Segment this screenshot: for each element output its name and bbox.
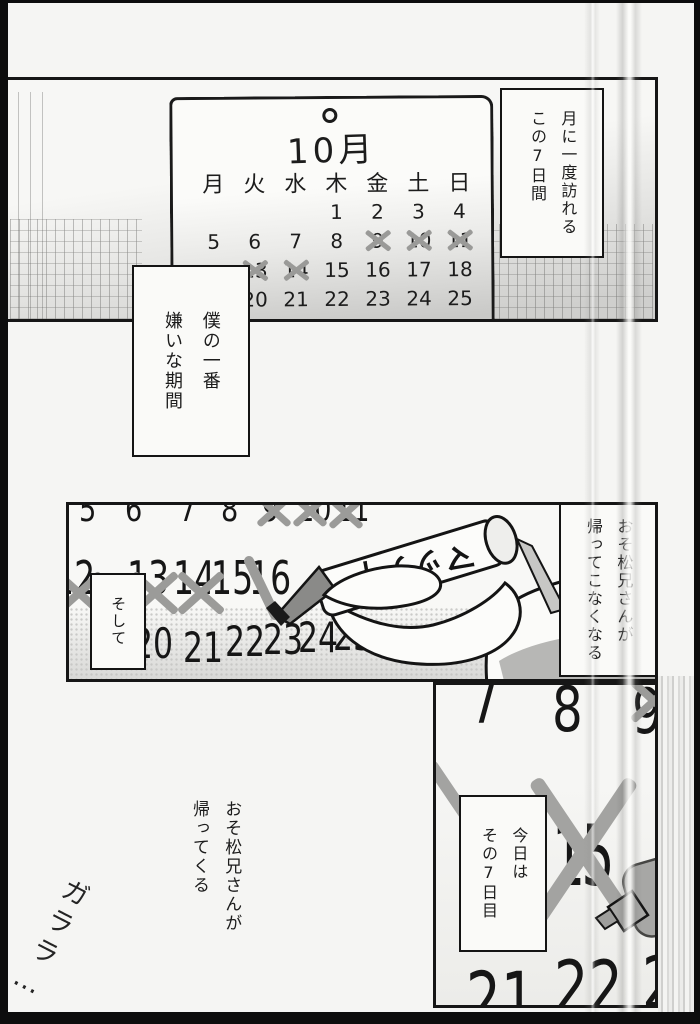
calendar-cell	[193, 198, 234, 227]
calendar-cell: 15	[316, 255, 357, 284]
caption-line: そして	[104, 596, 133, 647]
calendar-cell: 17	[398, 254, 439, 283]
calendar-weekday: 日	[439, 166, 480, 196]
narration-text: おそ松兄さんが 帰ってくる	[183, 800, 248, 933]
manga-page: 10月 月火水木金土日12345678910111314151617182021…	[0, 0, 700, 1024]
calendar-cell: 21	[276, 284, 317, 313]
caption-line: その7日目	[473, 827, 503, 920]
caption-text: 僕の一番 嫌いな期間	[153, 311, 229, 411]
calendar-weekday: 土	[398, 166, 439, 196]
narration-line: おそ松兄さんが	[215, 800, 247, 933]
calendar-cell: 3	[398, 196, 439, 225]
calendar-weekday: 火	[234, 167, 275, 197]
scan-border-bottom	[0, 1012, 700, 1024]
calendar-cell: 23	[358, 284, 399, 313]
caption-box-not-return: おそ松兄さんが 帰ってこなくなる	[559, 503, 657, 677]
caption-text: おそ松兄さんが 帰ってこなくなる	[578, 518, 639, 662]
caption-box-hate: 僕の一番 嫌いな期間	[132, 265, 250, 457]
calendar-cell: 4	[439, 196, 480, 225]
caption-line: 月に一度訪れる	[552, 110, 582, 236]
book-page-edges	[658, 676, 694, 1012]
caption-line: 嫌いな期間	[153, 311, 191, 411]
calendar-cell: 16	[357, 255, 398, 284]
sfx-door-slide: ガララ…	[0, 870, 96, 1009]
calendar-weekday: 水	[275, 167, 316, 197]
caption-text: そして	[104, 596, 133, 647]
calendar-cell: 24	[399, 283, 440, 312]
narration-line: 帰ってくる	[183, 800, 215, 933]
calendar-cell: 11	[439, 225, 480, 254]
floating-narration: おそ松兄さんが 帰ってくる	[172, 782, 258, 950]
calendar-cell: 7	[275, 226, 316, 255]
calendar-cell: 8	[316, 226, 357, 255]
calendar-cell: 9	[357, 226, 398, 255]
caption-box-seventh-day: 今日は その7日目	[459, 795, 547, 952]
scan-border-left	[0, 0, 8, 1024]
caption-line: 帰ってこなくなる	[578, 518, 608, 662]
caption-text: 今日は その7日目	[473, 827, 534, 920]
calendar-cell	[275, 197, 316, 226]
calendar-cell: 5	[193, 227, 234, 256]
calendar-cell: 25	[440, 283, 481, 312]
scan-border-top	[0, 0, 700, 3]
calendar-cell: 10	[398, 225, 439, 254]
calendar-cell: 2	[357, 197, 398, 226]
caption-text: 月に一度訪れる この7日間	[522, 110, 583, 236]
caption-line: この7日間	[522, 110, 552, 236]
calendar-weekday: 木	[316, 167, 357, 197]
scan-border-right	[694, 0, 700, 1024]
caption-box-soshite: そして	[90, 573, 146, 670]
caption-box-monthly: 月に一度訪れる この7日間	[500, 88, 604, 258]
calendar-cell: 18	[439, 254, 480, 283]
calendar-cell: 1	[316, 197, 357, 226]
caption-line: おそ松兄さんが	[608, 518, 638, 662]
calendar-weekday: 金	[357, 167, 398, 197]
calendar-weekday: 月	[193, 168, 234, 198]
calendar-cell: 14	[275, 255, 316, 284]
caption-line: 僕の一番	[191, 311, 229, 411]
calendar-cell: 6	[234, 226, 275, 255]
calendar-cell	[234, 197, 275, 226]
caption-line: 今日は	[503, 827, 533, 920]
crosshatch-texture-left	[10, 219, 142, 319]
calendar-pin-hole	[322, 108, 337, 123]
calendar-cell: 22	[317, 284, 358, 313]
